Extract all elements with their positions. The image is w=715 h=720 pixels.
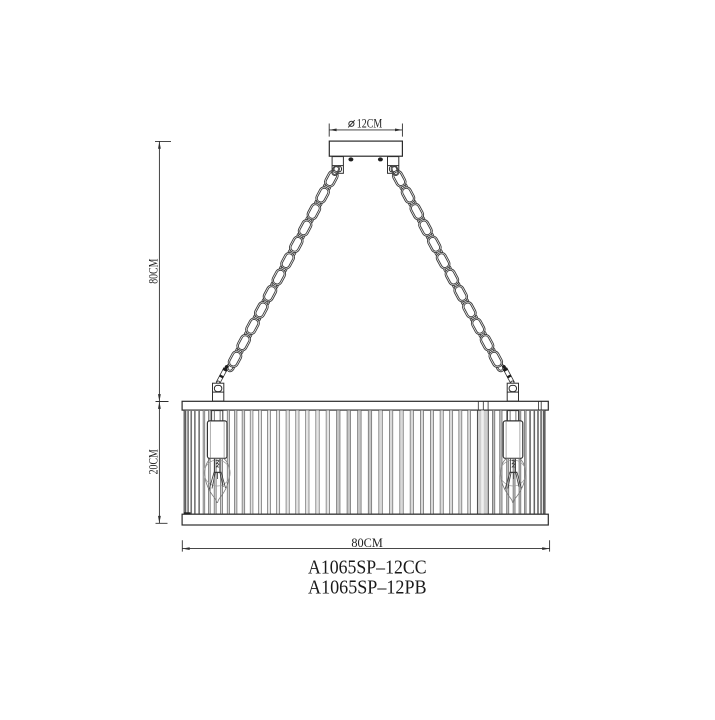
svg-text:12CM: 12CM xyxy=(357,116,383,130)
svg-text:80CM: 80CM xyxy=(146,259,160,284)
svg-text:A1065SP–12CC: A1065SP–12CC xyxy=(308,556,427,578)
svg-text:20CM: 20CM xyxy=(146,449,160,474)
svg-text:80CM: 80CM xyxy=(351,536,382,550)
svg-text:A1065SP–12PB: A1065SP–12PB xyxy=(308,576,427,598)
